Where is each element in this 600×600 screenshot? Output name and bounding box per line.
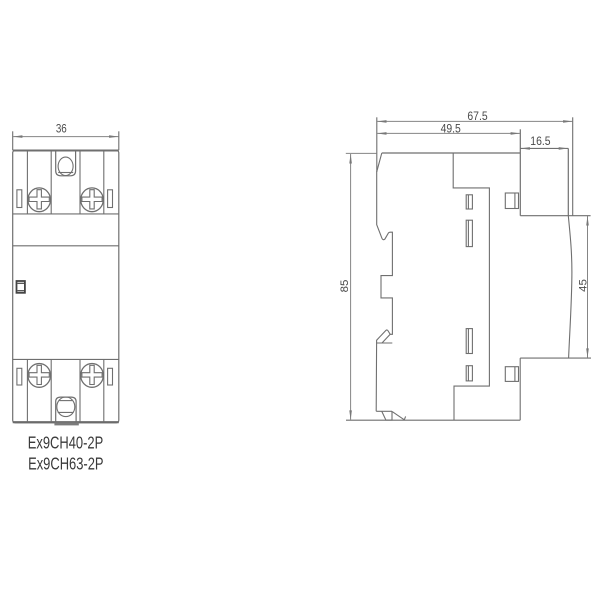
svg-text:49.5: 49.5 bbox=[441, 123, 461, 136]
svg-text:16.5: 16.5 bbox=[530, 135, 550, 148]
svg-text:Ex9CH40-2P: Ex9CH40-2P bbox=[28, 434, 103, 453]
svg-text:36: 36 bbox=[56, 123, 67, 136]
svg-text:45: 45 bbox=[578, 279, 590, 292]
svg-text:Ex9CH63-2P: Ex9CH63-2P bbox=[28, 455, 103, 474]
svg-text:67.5: 67.5 bbox=[467, 110, 487, 123]
svg-text:85: 85 bbox=[339, 280, 351, 293]
